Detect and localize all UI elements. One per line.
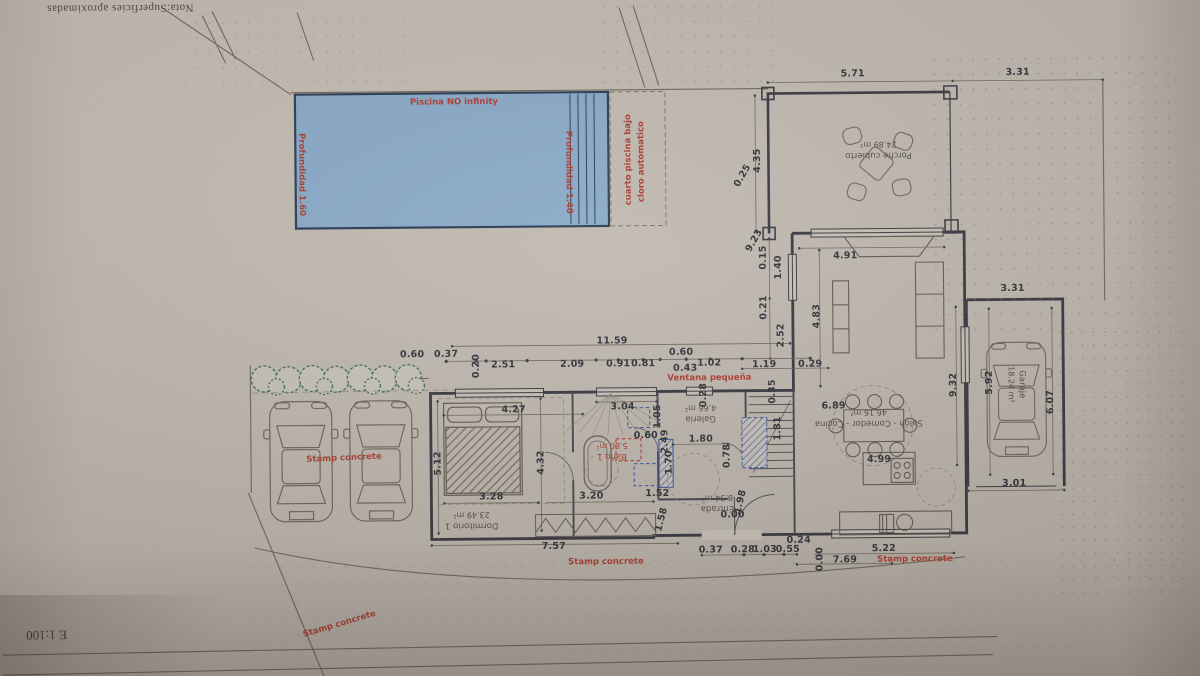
dimension-label: 1.02 xyxy=(697,357,721,368)
dimension-label: 0.60 xyxy=(400,349,424,360)
red-annotation: cuarto piscina bajo xyxy=(623,114,634,205)
floorplan-sheet: Nota:Superficies aproximadas E 1:100 5.7… xyxy=(0,0,1200,676)
red-annotation: Stamp concrete xyxy=(568,557,644,568)
dimension-label: 0.21 xyxy=(758,295,769,319)
dimension-label: 0.91 xyxy=(606,358,630,369)
dimension-label: 2.52 xyxy=(775,323,786,347)
dimension-label: 1.80 xyxy=(689,434,713,445)
dimension-label: 3.01 xyxy=(1002,478,1026,489)
dimension-label: 4.32 xyxy=(535,450,546,474)
dimension-label: 1.03 xyxy=(753,544,777,555)
dimension-label: 1.81 xyxy=(772,416,783,440)
annotation-layer: 5.713.314.350.259.230.151.400.212.524.83… xyxy=(0,0,1200,676)
dimension-label: 4.27 xyxy=(501,404,525,415)
red-annotation: cloro automatico xyxy=(636,121,647,202)
room-label: Dormitorio 123.49 m² xyxy=(445,510,499,531)
dimension-label: 0.37 xyxy=(434,349,458,360)
dimension-label: 0.60 xyxy=(669,347,693,358)
red-annotation: Piscina NO infinity xyxy=(410,97,498,108)
dimension-label: 7.57 xyxy=(542,541,566,552)
dimension-label: 4.83 xyxy=(811,304,822,328)
dimension-label: 5.92 xyxy=(984,370,995,394)
dimension-label: 1.58 xyxy=(653,506,670,532)
dimension-label: 9.32 xyxy=(948,373,959,397)
room-label: Garaje18.24 m² xyxy=(1006,366,1027,403)
dimension-label: 11.59 xyxy=(596,335,627,346)
red-annotation: Ventana pequeña xyxy=(667,373,751,384)
dimension-label: 0.24 xyxy=(787,535,811,546)
room-label: Galería4.66 m² xyxy=(685,403,717,424)
dimension-label: 0.25 xyxy=(732,162,754,189)
dimension-label: 0.78 xyxy=(721,444,732,468)
dimension-label: 0.29 xyxy=(798,359,822,370)
dimension-label: 2.51 xyxy=(491,359,515,370)
dimension-label: 0.28 xyxy=(731,544,755,555)
dimension-label: 0.20 xyxy=(471,354,482,378)
dimension-label: 3.20 xyxy=(579,490,603,501)
dimension-label: 0.81 xyxy=(631,358,655,369)
red-annotation: Profundidad 1.60 xyxy=(296,133,307,216)
dimension-label: 3.31 xyxy=(1006,67,1030,78)
room-label: Entrada8.34 m² xyxy=(701,493,735,514)
dimension-label: 2.09 xyxy=(560,359,584,370)
dimension-label: 5.12 xyxy=(432,451,443,475)
red-annotation: Profundidad 1.40 xyxy=(563,131,574,214)
dimension-label: 4.99 xyxy=(867,454,891,465)
dimension-label: 3.28 xyxy=(479,491,503,502)
dimension-label: 1.70 xyxy=(663,450,674,474)
red-annotation: Stamp concrete xyxy=(877,554,953,565)
dimension-label: 4.91 xyxy=(833,250,857,261)
dimension-label: 4.35 xyxy=(752,148,763,172)
dimension-label: 0.00 xyxy=(814,547,825,571)
dimension-label: 1.52 xyxy=(645,488,669,499)
dimension-label: 5.22 xyxy=(872,543,896,554)
dimension-label: 3.31 xyxy=(1000,283,1024,294)
dimension-label: 6.07 xyxy=(1045,390,1056,414)
dimension-label: 0.43 xyxy=(673,363,697,374)
dimension-label: 0.35 xyxy=(767,379,778,403)
dimension-label: 1.05 xyxy=(652,404,663,428)
dimension-label: 0.37 xyxy=(699,544,723,555)
room-label: Salón - Comedor - Cocina46.16 m² xyxy=(815,407,923,429)
dimension-label: 5.71 xyxy=(841,68,865,79)
red-annotation: Stamp concrete xyxy=(306,452,382,465)
red-annotation: Stamp concrete xyxy=(302,609,377,640)
room-label: Porche cubierto24.89 m² xyxy=(845,139,912,160)
dimension-label: 0.60 xyxy=(634,430,658,441)
dimension-label: 1.19 xyxy=(752,359,776,370)
plan-photo: Nota:Superficies aproximadas E 1:100 5.7… xyxy=(0,0,1200,676)
dimension-label: 1.40 xyxy=(773,255,784,279)
dimension-label: 0.15 xyxy=(758,245,769,269)
room-label: Baño 15.80 m² xyxy=(596,440,628,461)
dimension-label: 3.04 xyxy=(610,401,634,412)
dimension-label: 7.69 xyxy=(833,554,857,565)
